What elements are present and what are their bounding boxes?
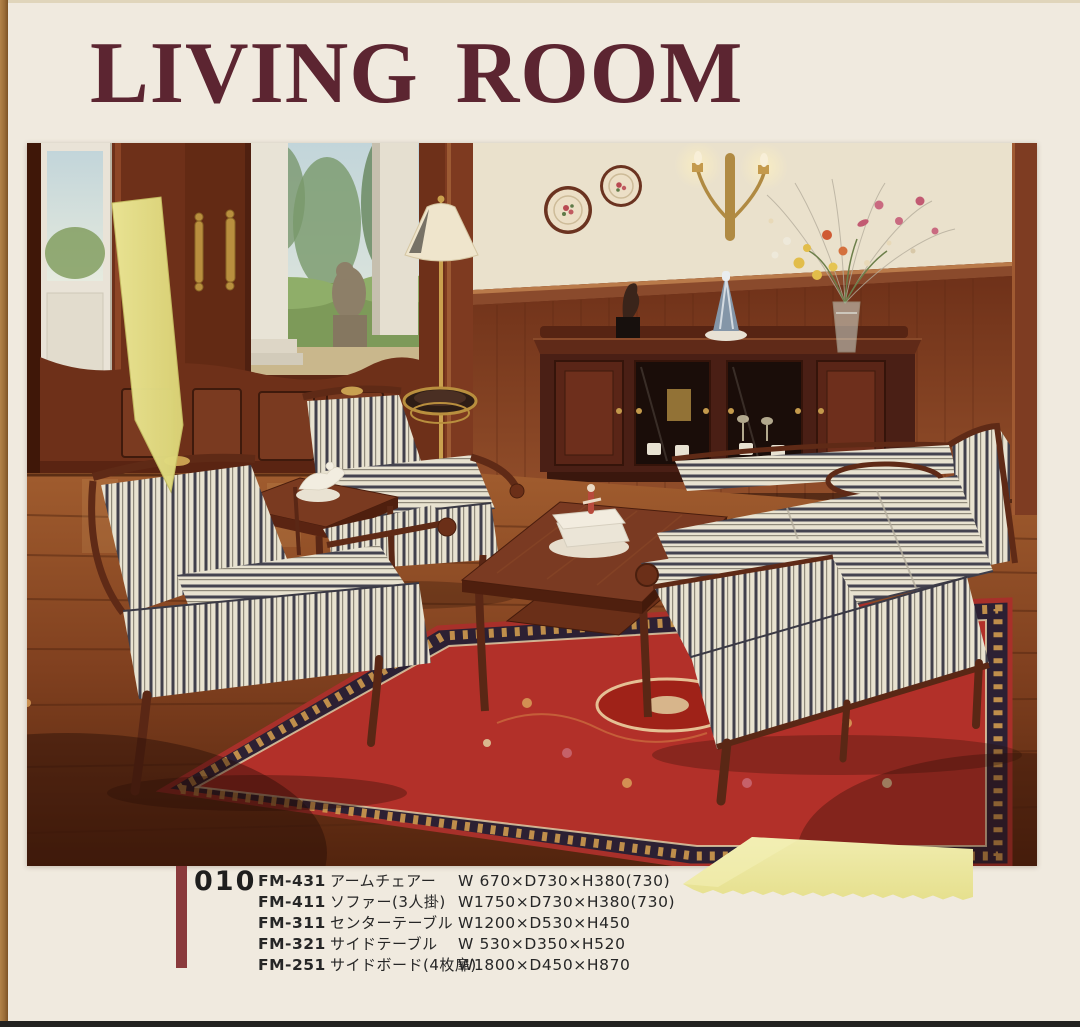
page-top-edge xyxy=(8,0,1080,3)
product-code: FM-321 xyxy=(258,934,330,955)
product-code: FM-431 xyxy=(258,871,330,892)
product-size: W 530×D350×H520 xyxy=(458,934,626,955)
product-row: FM-311 センターテーブル W1200×D530×H450 xyxy=(258,913,675,934)
product-name: サイドボード(4枚扉) xyxy=(330,955,458,976)
product-row: FM-431 アームチェアー W 670×D730×H380(730) xyxy=(258,871,675,892)
product-row: FM-251 サイドボード(4枚扉) W1800×D450×H870 xyxy=(258,955,675,976)
page-title: LIVING ROOM xyxy=(90,30,743,118)
product-size: W1800×D450×H870 xyxy=(458,955,631,976)
product-size: W1750×D730×H380(730) xyxy=(458,892,675,913)
page-number: 010 xyxy=(194,866,256,897)
living-room-photo xyxy=(27,143,1037,866)
product-code: FM-411 xyxy=(258,892,330,913)
product-name: サイドテーブル xyxy=(330,934,458,955)
product-name: ソファー(3人掛) xyxy=(330,892,458,913)
sofa xyxy=(636,425,1022,801)
product-code: FM-251 xyxy=(258,955,330,976)
product-code: FM-311 xyxy=(258,913,330,934)
product-list: FM-431 アームチェアー W 670×D730×H380(730) FM-4… xyxy=(258,871,675,976)
product-name: アームチェアー xyxy=(330,871,458,892)
product-size: W1200×D530×H450 xyxy=(458,913,631,934)
page-left-edge xyxy=(0,0,8,1027)
product-row: FM-411 ソファー(3人掛) W1750×D730×H380(730) xyxy=(258,892,675,913)
product-row: FM-321 サイドテーブル W 530×D350×H520 xyxy=(258,934,675,955)
catalog-page: LIVING ROOM xyxy=(0,0,1080,1027)
product-size: W 670×D730×H380(730) xyxy=(458,871,670,892)
accent-bar xyxy=(176,866,187,968)
page-bottom-edge xyxy=(0,1021,1080,1027)
product-name: センターテーブル xyxy=(330,913,458,934)
